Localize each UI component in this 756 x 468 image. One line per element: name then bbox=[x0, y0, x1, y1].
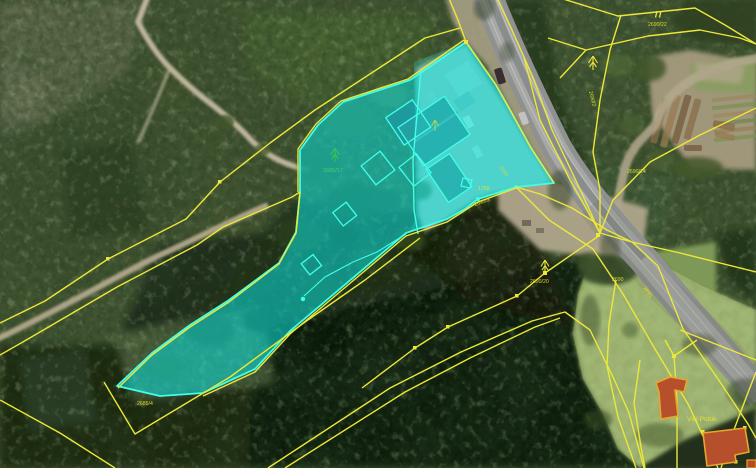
svg-text:1768: 1768 bbox=[478, 186, 490, 192]
svg-text:2685/1: 2685/1 bbox=[227, 319, 247, 326]
svg-text:2690/20: 2690/20 bbox=[530, 279, 549, 285]
svg-text:2690/24: 2690/24 bbox=[627, 169, 646, 175]
svg-text:2685/4: 2685/4 bbox=[137, 401, 153, 407]
svg-text:2685/17: 2685/17 bbox=[323, 168, 343, 174]
svg-text:2690/22: 2690/22 bbox=[648, 22, 667, 28]
svg-text:2690: 2690 bbox=[612, 277, 624, 283]
svg-text:Vlčí Potok: Vlčí Potok bbox=[687, 416, 717, 423]
